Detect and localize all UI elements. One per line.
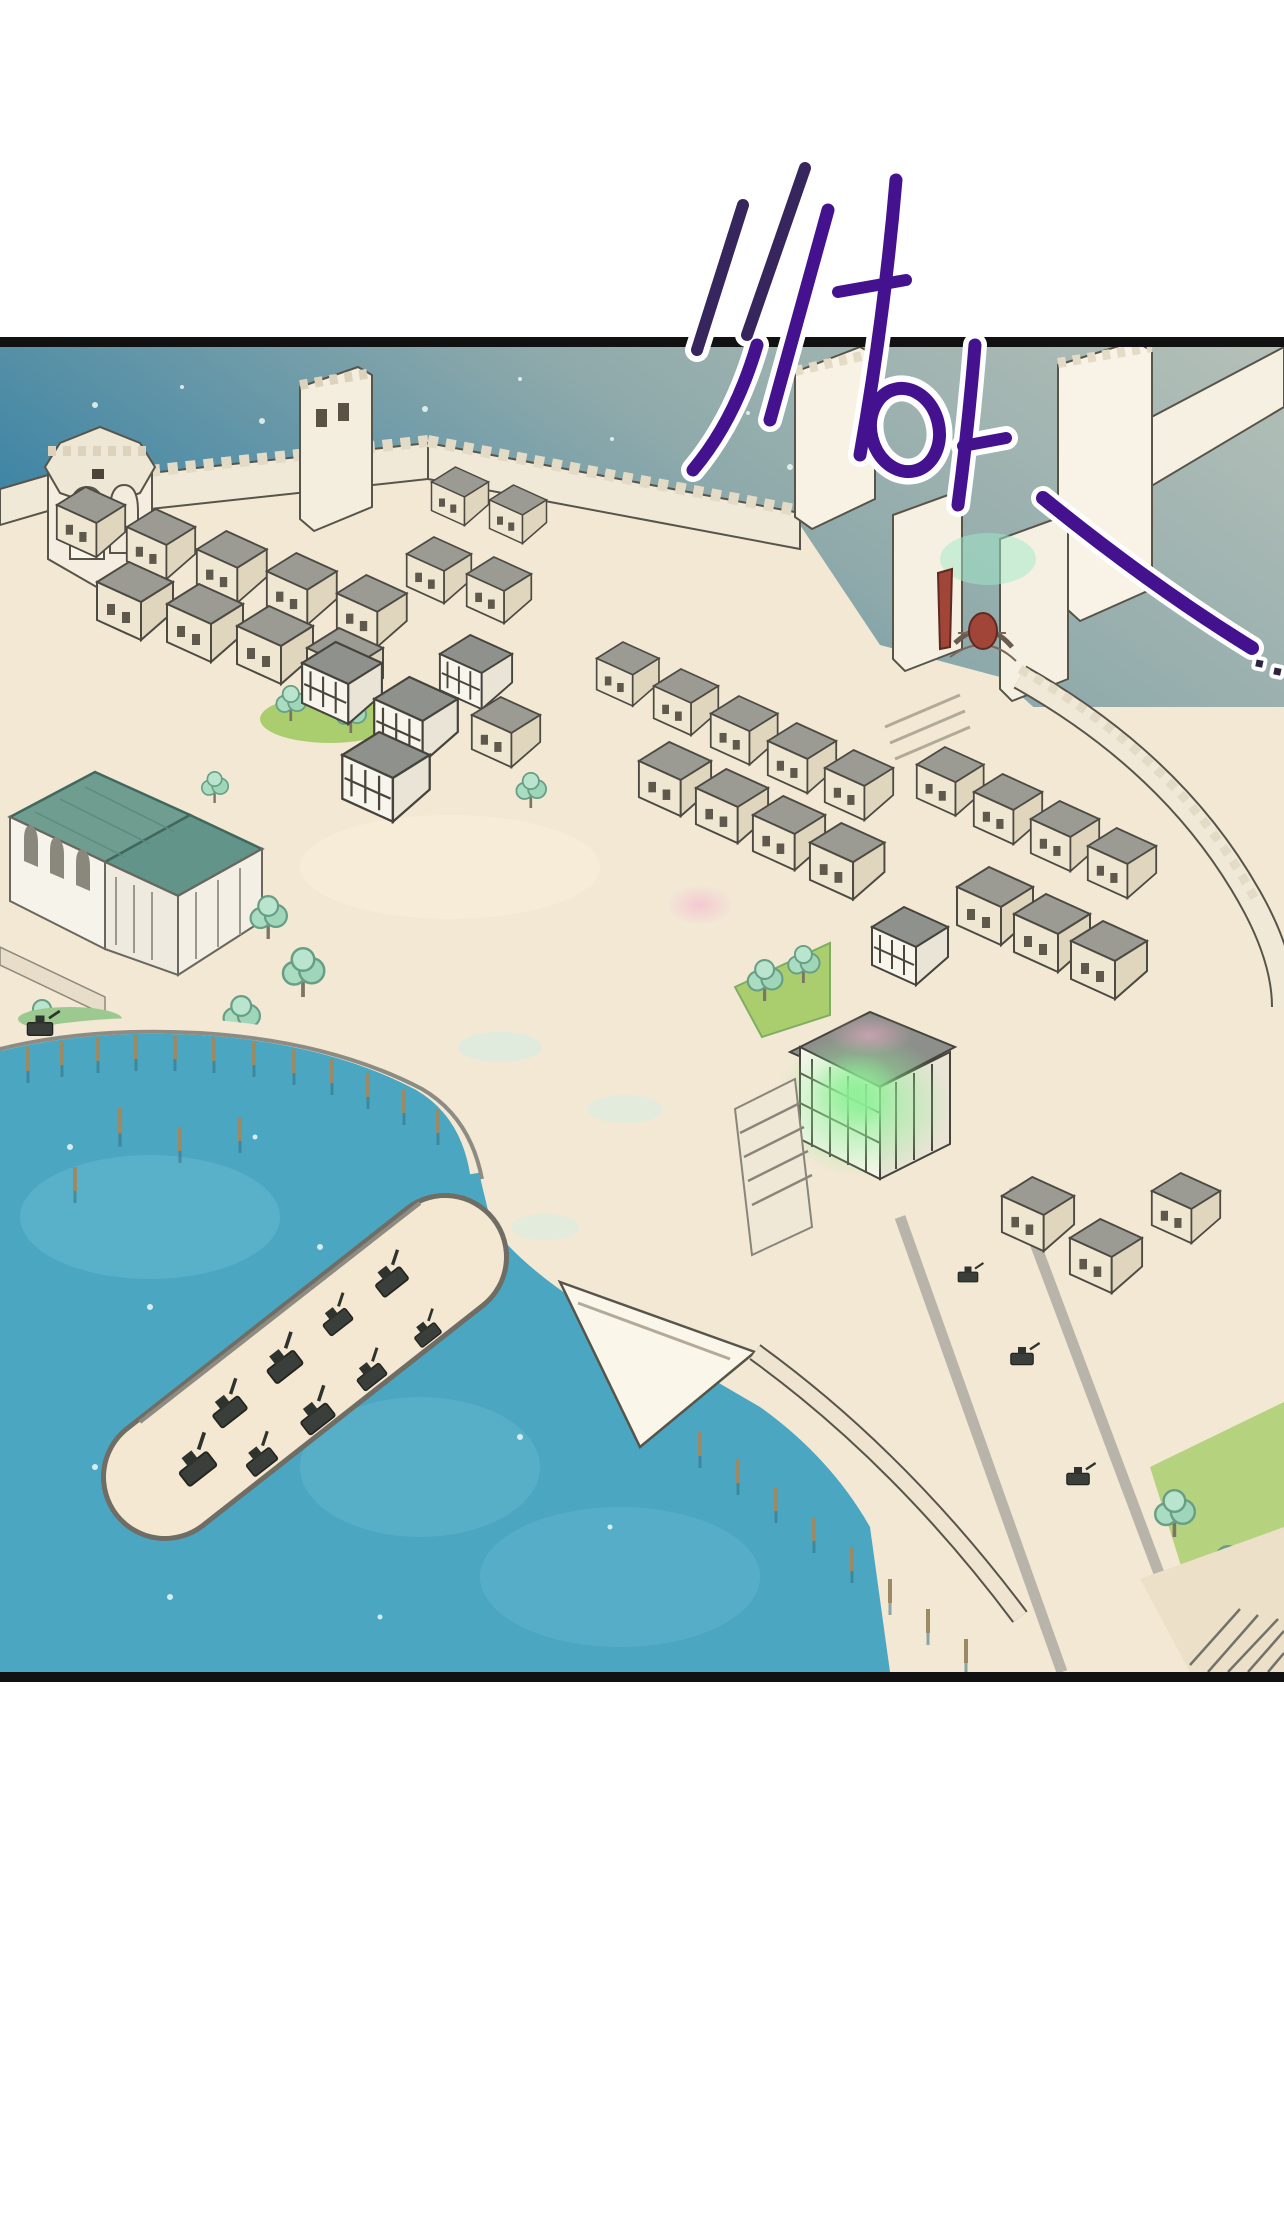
gate-banner: [938, 569, 952, 649]
webtoon-page: 최신 웹툰 THE 빠르고 THE 편하게 구글검색: [0, 0, 1284, 2238]
gate-crest: [969, 613, 997, 649]
bell-tower: [300, 367, 372, 531]
city-illustration: [0, 347, 1284, 1672]
comic-panel: 최신 웹툰 THE 빠르고 THE 편하게 구글검색: [0, 337, 1284, 1682]
teal-glow: [940, 533, 1036, 585]
